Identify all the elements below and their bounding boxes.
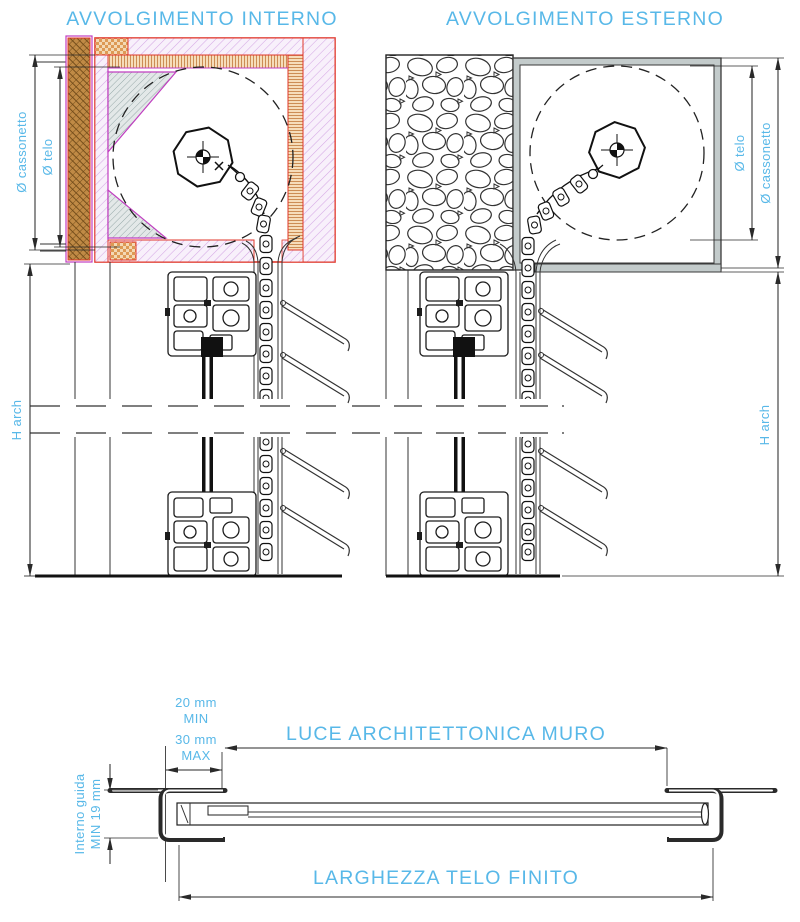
glass-pane xyxy=(202,357,206,406)
dimension-curtain-width: LARGHEZZA TELO FINITO xyxy=(179,845,713,901)
glazing-bead-top xyxy=(201,337,223,357)
offset-max-value: 30 mm xyxy=(175,732,217,747)
frame-profile-bottom xyxy=(417,492,508,576)
section-break-band xyxy=(30,399,346,437)
dim-label-h-arch: H arch xyxy=(757,405,772,446)
octagonal-tube xyxy=(174,128,233,187)
open-slat-fin xyxy=(539,352,608,403)
stone-wall xyxy=(386,55,513,270)
dim-label-h-arch: H arch xyxy=(9,400,24,441)
offset-max-label: MAX xyxy=(181,748,210,763)
open-slat-fin xyxy=(281,448,350,499)
open-slat-fin xyxy=(539,448,608,499)
external-winding-title: AVVOLGIMENTO ESTERNO xyxy=(446,8,724,30)
dim-label-cassonetto: Ø cassonetto xyxy=(14,111,29,192)
box-side-board xyxy=(288,55,303,250)
guide-interior-label-2: MIN 19 mm xyxy=(88,779,103,850)
slat-end-cap xyxy=(702,804,709,825)
insulation-block-top xyxy=(95,38,128,55)
dim-label-cassonetto: Ø cassonetto xyxy=(758,122,773,203)
plan-section: 20 mm MIN 30 mm MAX LUCE ARCHITETTONICA … xyxy=(72,695,775,901)
offset-min-label: MIN xyxy=(183,711,208,726)
shutter-installation-drawing: AVVOLGIMENTO INTERNO xyxy=(0,0,800,922)
dim-label-telo: Ø telo xyxy=(732,134,747,171)
box-bottom-rail xyxy=(535,264,721,272)
open-slat-fin xyxy=(281,352,350,403)
insulation-block-bottom xyxy=(110,242,136,260)
open-slat-fin xyxy=(281,300,350,351)
offset-min-value: 20 mm xyxy=(175,695,217,710)
internal-winding-title: AVVOLGIMENTO INTERNO xyxy=(66,8,337,30)
open-slat-fin xyxy=(539,308,608,359)
open-slat-fin xyxy=(539,505,608,556)
curtain-slat-plan xyxy=(177,803,709,825)
frame-profile-bottom xyxy=(165,492,256,576)
dimension-guide-interior: Interno guida MIN 19 mm xyxy=(72,764,158,864)
interior-wall-strip xyxy=(66,36,92,262)
internal-winding-section: AVVOLGIMENTO INTERNO xyxy=(9,8,349,576)
guide-interior-label-1: Interno guida xyxy=(72,773,87,854)
curtain-width-label: LARGHEZZA TELO FINITO xyxy=(313,867,579,889)
section-break-band xyxy=(352,399,566,437)
box-top-board xyxy=(108,55,303,68)
wall-opening-label: LUCE ARCHITETTONICA MURO xyxy=(286,723,606,745)
external-winding-section: AVVOLGIMENTO ESTERNO xyxy=(352,8,784,576)
open-slat-fin xyxy=(281,505,350,556)
glazing-bead-top xyxy=(453,337,475,357)
technical-drawing-page: AVVOLGIMENTO INTERNO xyxy=(0,0,800,922)
glass-pane xyxy=(454,357,458,406)
dim-label-telo: Ø telo xyxy=(40,138,55,175)
dimension-guide-offset: 20 mm MIN 30 mm MAX xyxy=(166,695,222,788)
dimension-height-external: H arch xyxy=(562,272,784,576)
dimension-wall-opening: LUCE ARCHITETTONICA MURO xyxy=(225,723,667,786)
